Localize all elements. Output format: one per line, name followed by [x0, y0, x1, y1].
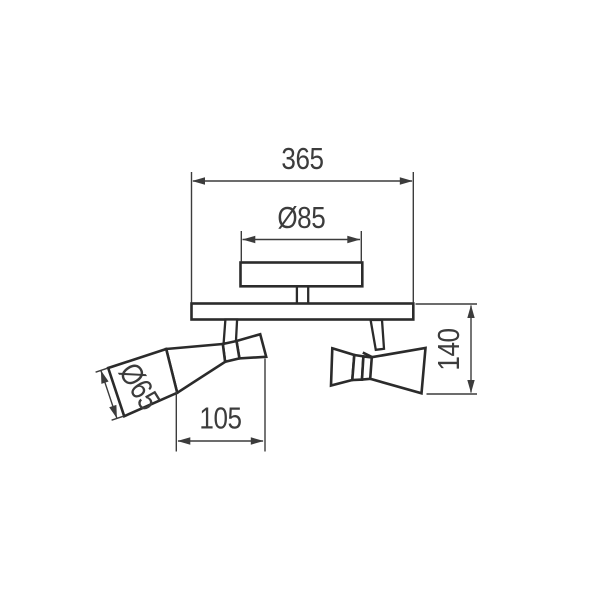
arrowhead-top [101, 370, 109, 384]
right-spotlight-arm [371, 320, 384, 350]
right-spotlight-cone [370, 348, 425, 393]
right-spotlight [331, 320, 426, 393]
spotlight-dimension-drawing: 365 Ø85 Ø65 105 140 [0, 0, 600, 600]
arrowhead-right [347, 236, 360, 243]
mounting-bar [192, 304, 414, 320]
arrowhead-right [251, 437, 264, 444]
mounting-bar-body [192, 304, 414, 320]
arrowhead-left [192, 177, 205, 184]
dim-label-140: 140 [432, 328, 467, 370]
arrowhead-right [400, 177, 413, 184]
dim-label-d85: Ø85 [277, 201, 325, 236]
dim-label-105: 105 [199, 401, 241, 436]
technical-drawing-canvas: 365 Ø85 Ø65 105 140 [0, 0, 600, 600]
arrowhead-left [242, 236, 255, 243]
arrowhead-left [177, 437, 190, 444]
left-spotlight-joint [237, 334, 267, 358]
stem [297, 286, 308, 303]
arrowhead-top [467, 305, 474, 318]
arrowhead-bottom [467, 380, 474, 393]
canopy [241, 263, 363, 287]
right-spotlight-back-cap [331, 348, 354, 385]
ext-line-bottom [112, 416, 124, 420]
dimension-canopy-diameter: Ø85 [241, 201, 361, 262]
arrowhead-bottom [109, 405, 117, 419]
dim-label-365: 365 [281, 142, 323, 177]
canopy-plate [241, 263, 363, 287]
